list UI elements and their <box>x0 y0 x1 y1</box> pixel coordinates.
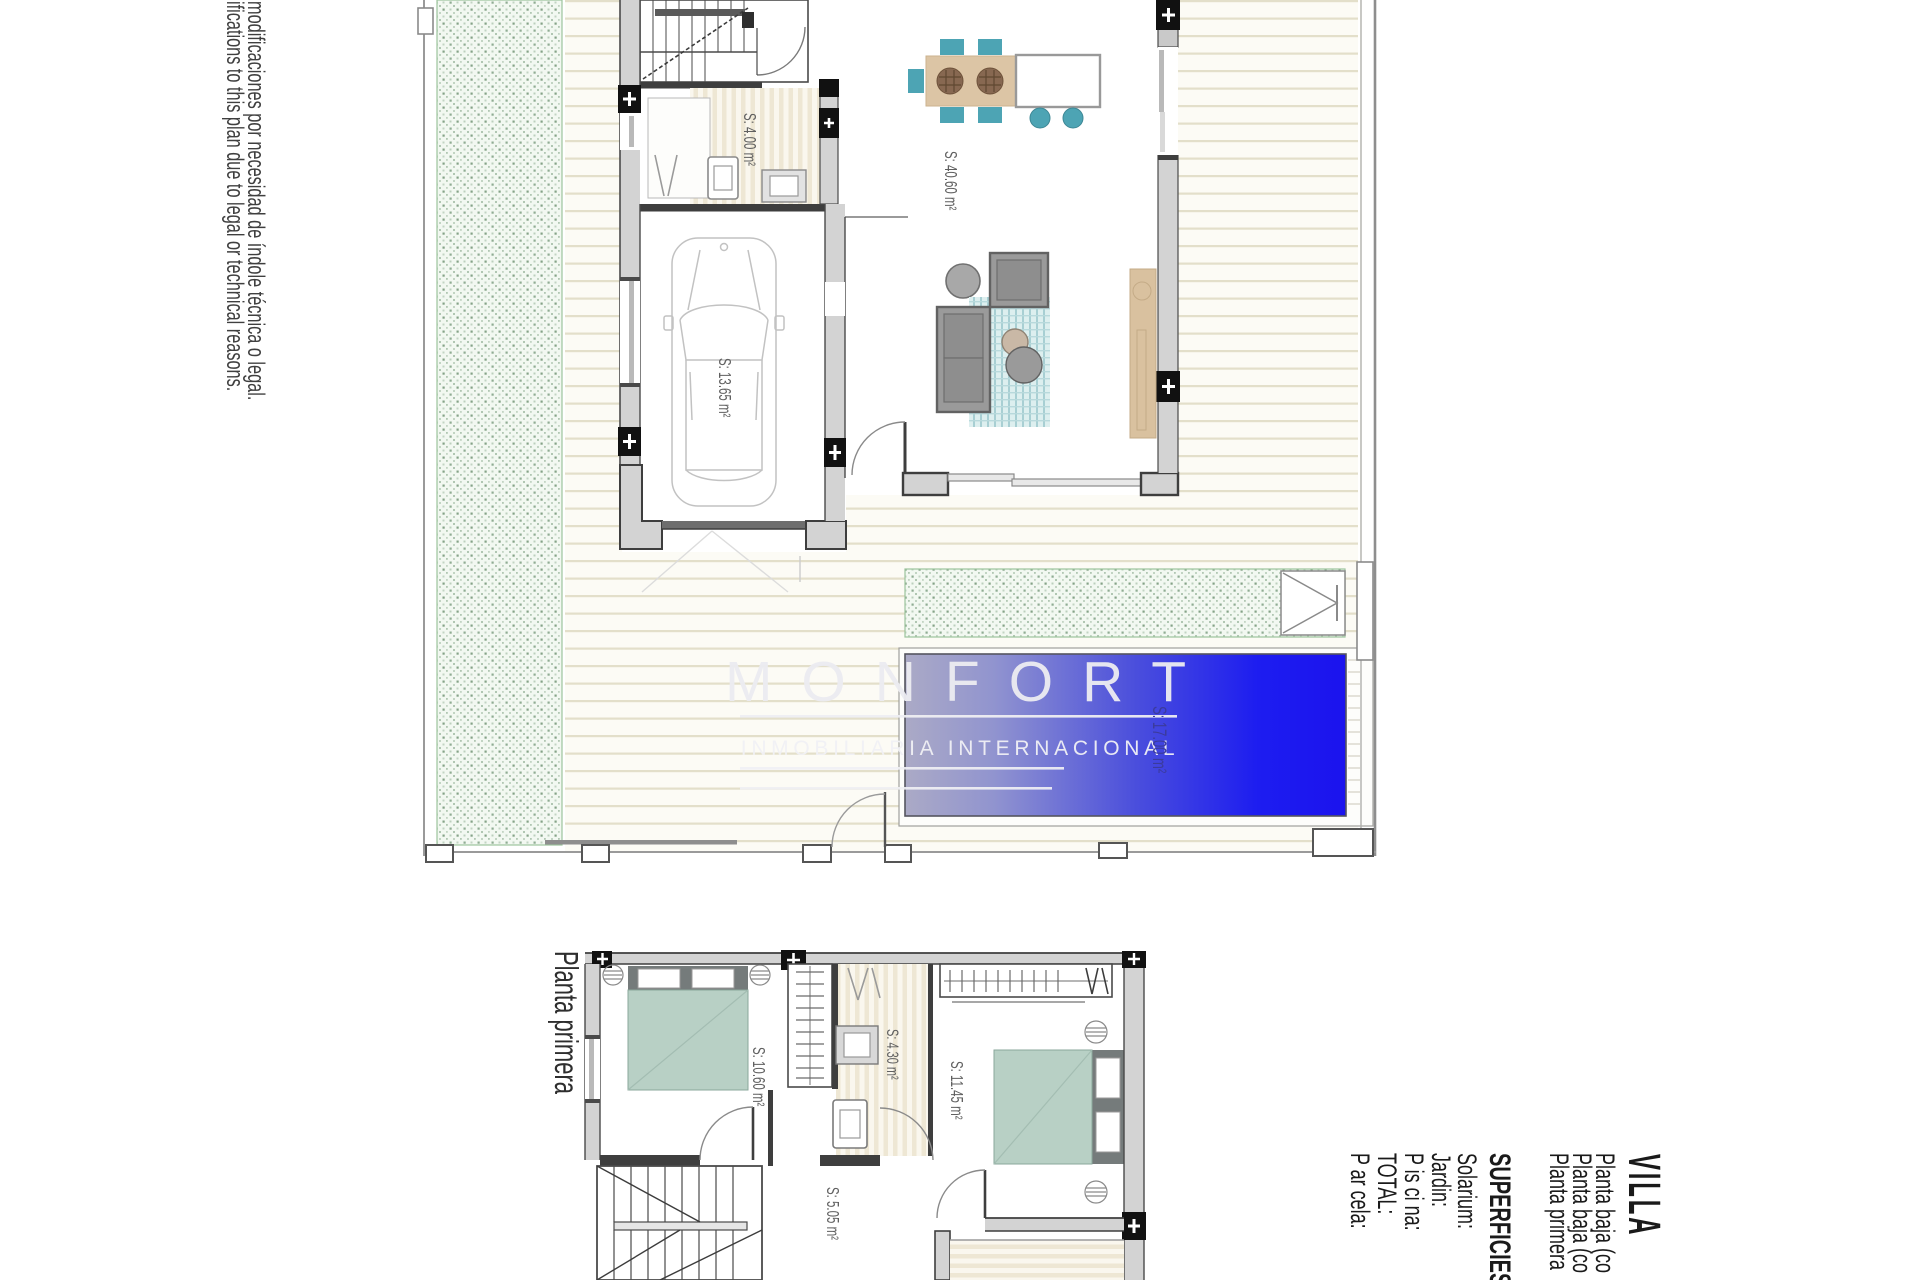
svg-text:S: 17.00 m²: S: 17.00 m² <box>1148 706 1170 774</box>
svg-text:S: 10.60 m²: S: 10.60 m² <box>748 1047 767 1106</box>
svg-text:S: 5.05 m²: S: 5.05 m² <box>822 1187 841 1240</box>
svg-text:S: 11.45 m²: S: 11.45 m² <box>946 1061 965 1120</box>
svg-text:TOTAL:: TOTAL: <box>1372 1153 1403 1214</box>
svg-text:P is ci na:: P is ci na: <box>1399 1153 1430 1231</box>
svg-text:P ar cela:: P ar cela: <box>1345 1153 1376 1229</box>
svg-text:S: 40.60 m²: S: 40.60 m² <box>940 151 959 210</box>
svg-text:VILLA: VILLA <box>1619 1154 1670 1237</box>
svg-text:MONFORT: MONFORT <box>725 650 1215 714</box>
svg-text:ifications to this plan due to: ifications to this plan due to legal or … <box>221 1 248 391</box>
svg-text:Jardin:: Jardin: <box>1426 1153 1457 1207</box>
svg-text:S: 4.00 m²: S: 4.00 m² <box>739 113 758 166</box>
svg-text:SUPERFICIES: SUPERFICIES <box>1483 1153 1516 1280</box>
svg-text:Planta primera: Planta primera <box>548 951 584 1094</box>
svg-text:INMOBILIARIA INTERNACIONAL: INMOBILIARIA INTERNACIONAL <box>741 737 1179 760</box>
svg-text:S: 4.30 m²: S: 4.30 m² <box>883 1029 902 1080</box>
svg-text:Planta primera: Planta primera <box>1544 1153 1575 1270</box>
svg-text:S: 13.65 m²: S: 13.65 m² <box>714 358 733 417</box>
